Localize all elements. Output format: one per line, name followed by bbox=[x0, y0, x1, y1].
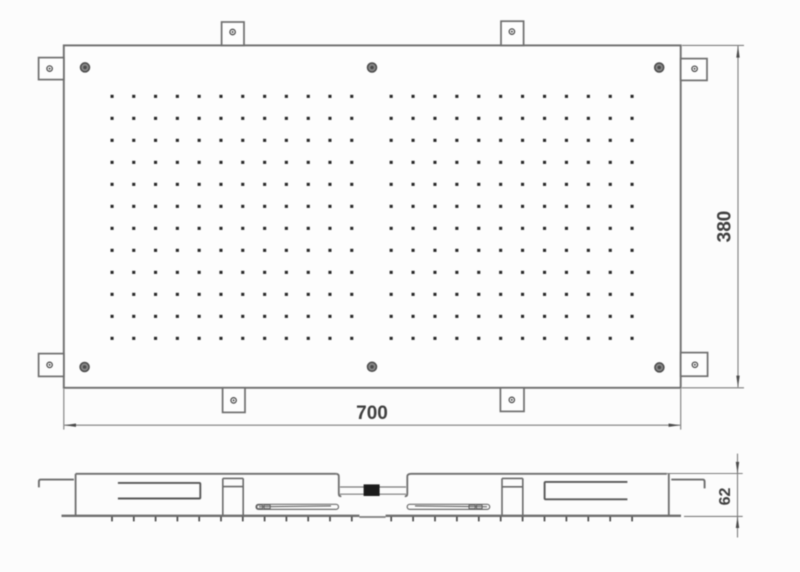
svg-text:380: 380 bbox=[715, 211, 736, 243]
svg-text:62: 62 bbox=[717, 488, 734, 506]
svg-text:700: 700 bbox=[356, 403, 388, 424]
